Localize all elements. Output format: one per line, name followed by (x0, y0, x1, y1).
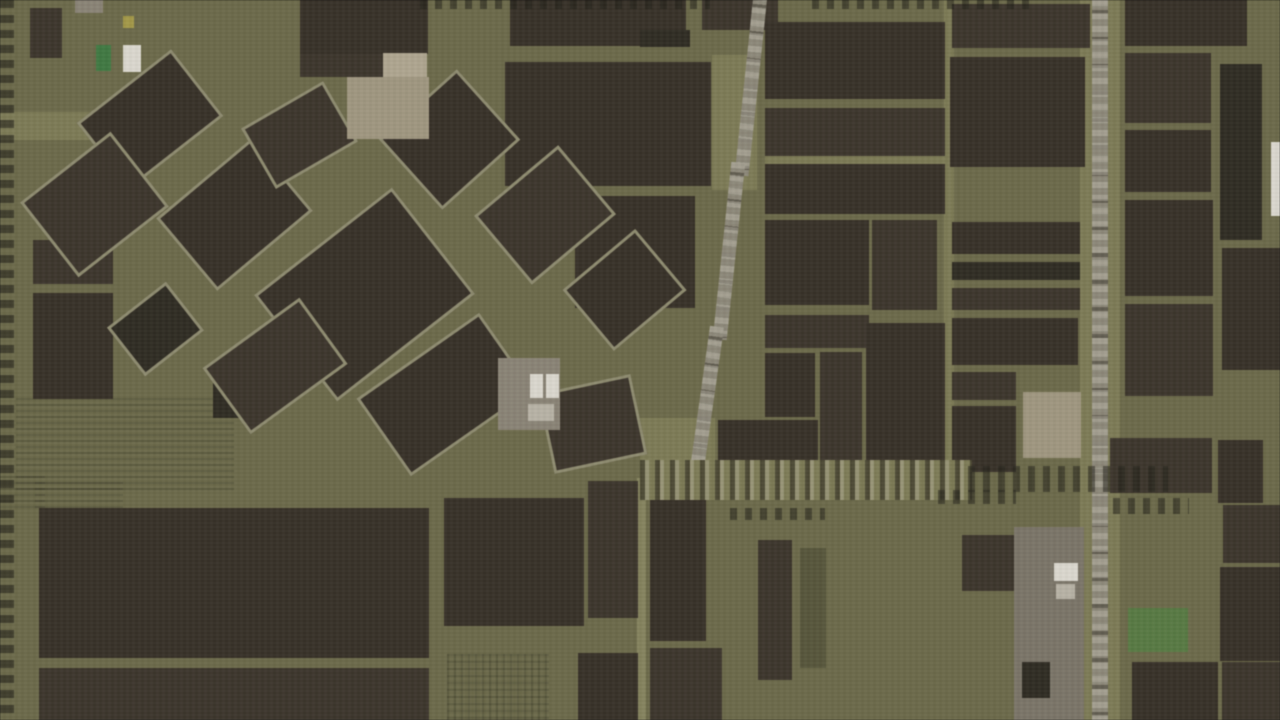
orchard-rows (35, 482, 123, 508)
field-plot (952, 4, 1090, 48)
bare-field (1023, 392, 1081, 458)
field-plot (765, 315, 869, 348)
map-viewport[interactable] (0, 0, 1280, 720)
field-plot (765, 353, 815, 417)
field-plot (300, 54, 384, 77)
field-plot (640, 30, 690, 47)
field-plot (1220, 64, 1262, 240)
field-plot (952, 288, 1080, 310)
hedge-row (938, 490, 1016, 504)
field-strip (800, 548, 826, 668)
field-plot (765, 108, 945, 156)
field-plot (1220, 567, 1280, 661)
map-canvas (0, 0, 1280, 720)
field-strip (758, 540, 792, 680)
field-plot (650, 488, 706, 641)
field-plot (952, 222, 1080, 254)
field-plot (765, 220, 869, 305)
field-plot (765, 164, 945, 214)
field-plot (1125, 200, 1213, 296)
map-marker-green (96, 45, 111, 71)
edge-marker (1271, 142, 1280, 216)
field-plot (300, 0, 428, 54)
field-plot (650, 648, 722, 720)
tree-line (420, 0, 710, 9)
tree-line (812, 0, 1036, 9)
orchard-rows (16, 398, 234, 490)
field-plot (950, 57, 1085, 167)
field-plot (1222, 662, 1280, 720)
light-strip (637, 478, 646, 720)
field-plot (444, 498, 584, 626)
field-plot (1223, 505, 1280, 563)
field-plot (578, 653, 638, 720)
field-rows (730, 508, 825, 520)
field-plot (872, 220, 937, 310)
field-plot (1125, 304, 1213, 396)
farm-building (530, 374, 543, 398)
map-marker-yellow (123, 16, 134, 28)
bare-patch (75, 0, 103, 13)
field-plot (952, 262, 1080, 280)
field-plot (588, 481, 638, 618)
field-plot (952, 372, 1016, 400)
bare-field (347, 77, 429, 139)
field-plot (33, 293, 113, 399)
tree-lined-road (640, 460, 972, 500)
field-plot (30, 8, 62, 58)
crop-grid (447, 654, 549, 720)
tree-line (968, 466, 1168, 492)
field-plot (1132, 662, 1218, 720)
hedge-row (1113, 498, 1189, 514)
field-plot (39, 668, 429, 720)
field-plot (1022, 662, 1050, 698)
farm-building (1056, 584, 1075, 599)
field-plot (1125, 130, 1211, 192)
map-marker-light (123, 45, 141, 72)
field-plot (866, 323, 945, 473)
field-plot (820, 352, 862, 472)
field-plot (1218, 440, 1263, 503)
meadow-patch (1128, 608, 1188, 652)
field-plot (765, 22, 945, 99)
road-verge (1108, 0, 1120, 720)
farm-building (546, 374, 559, 398)
bare-field (383, 53, 427, 77)
field-plot (1222, 248, 1280, 370)
field-plot (1125, 0, 1247, 46)
farm-building (1054, 563, 1078, 581)
field-plot-rotated (107, 281, 204, 376)
field-plot (1125, 53, 1211, 123)
tree-line (0, 0, 14, 720)
field-plot (39, 508, 429, 658)
field-plot (952, 318, 1078, 365)
road (1092, 0, 1108, 720)
farm-building (528, 404, 554, 421)
